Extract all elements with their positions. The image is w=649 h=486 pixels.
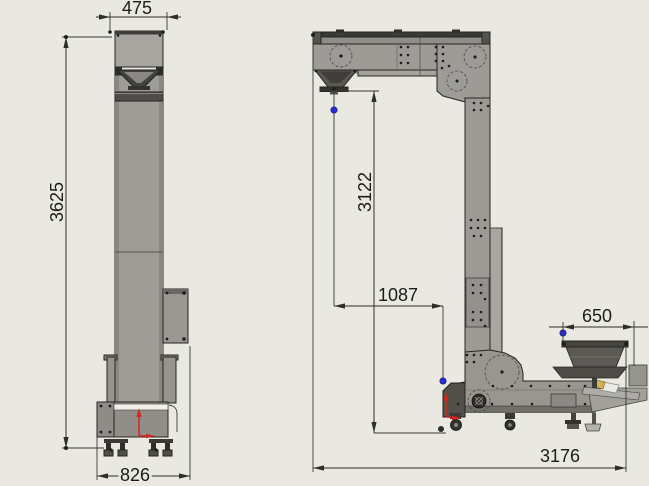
side-top-arm-body [313, 44, 437, 70]
front-base-left-panel [97, 402, 114, 437]
front-head-box [115, 31, 163, 67]
side-base-access-panel [551, 394, 576, 407]
side-view: 3122 1087 650 3176 [311, 30, 648, 473]
front-infeed-hopper-edge [163, 289, 188, 343]
front-feet [104, 439, 173, 456]
dim-label-side-total-length: 3176 [540, 446, 580, 466]
side-column-back-panel [490, 228, 502, 358]
front-view: 475 3625 826 [47, 0, 190, 485]
vertex-marker-base [440, 378, 446, 384]
front-dim-height: 3625 [47, 35, 112, 450]
side-machine [311, 30, 647, 433]
side-column-panel [466, 278, 489, 327]
dim-label-side-drop-height: 3122 [355, 172, 375, 212]
dim-label-side-offset: 1087 [378, 285, 418, 305]
vertex-marker-discharge [331, 107, 337, 113]
front-dim-top-width: 475 [96, 0, 181, 30]
technical-drawing-canvas: 475 3625 826 [0, 0, 649, 486]
side-top-corner-housing [437, 44, 490, 102]
dim-label-front-base-width: 826 [120, 465, 150, 485]
side-dim-offset: 1087 [334, 285, 443, 309]
dim-label-side-infeed-width: 650 [582, 306, 612, 326]
bucket-elevator-drawing: 475 3625 826 [0, 0, 649, 486]
side-dim-drop-height: 3122 [334, 91, 446, 433]
front-elevator-column [97, 30, 188, 456]
dim-label-front-top-width: 475 [122, 0, 152, 18]
front-boot-pipe [169, 405, 177, 432]
side-witness-lines [331, 90, 566, 384]
dim-label-front-height: 3625 [47, 182, 67, 222]
